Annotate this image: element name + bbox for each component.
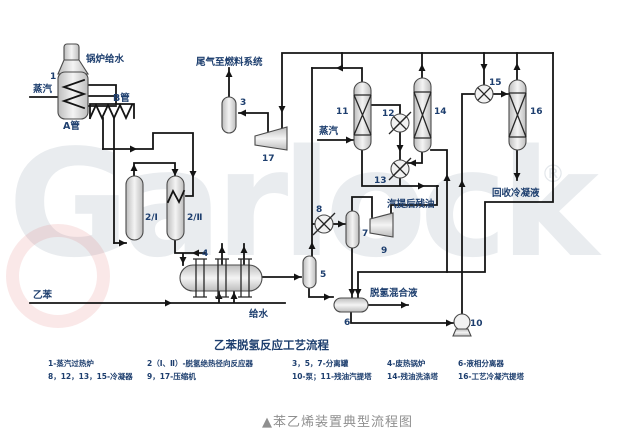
tag-4: 4 [202, 249, 208, 259]
label-boiler-feed-water: 锅炉给水 [86, 53, 125, 65]
tag-2-1: 2/Ⅰ [145, 213, 158, 223]
condenser-8 [313, 213, 335, 235]
figure-caption: ▲苯乙烯装置典型流程图 [262, 411, 413, 430]
tag-6: 6 [344, 318, 350, 328]
vessel-5 [303, 256, 316, 288]
label-tail-gas: 尾气至燃料系统 [195, 56, 263, 68]
tag-17: 17 [262, 154, 275, 164]
tag-8: 8 [316, 205, 322, 215]
stripper-16 [509, 80, 526, 150]
label-steam-left: 蒸汽 [33, 83, 53, 95]
label-steam-mid: 蒸汽 [319, 125, 339, 137]
reactor-2-2 [167, 176, 184, 240]
stripper-11 [354, 82, 371, 150]
label-dehydro-mixture: 脱氢混合液 [370, 287, 418, 299]
vessel-7 [346, 211, 359, 248]
legend-item: 8，12，13，15-冷凝器 [48, 371, 133, 382]
equipment-numbers: 1 2/Ⅰ 2/Ⅱ 3 4 5 6 7 8 9 10 11 12 13 14 1… [50, 72, 543, 329]
reactor-2-1 [126, 176, 143, 240]
label-tube-b: B管 [113, 92, 130, 104]
compressor-17 [255, 127, 287, 150]
diagram-title: 乙苯脱氢反应工艺流程 [214, 337, 329, 353]
process-flow-diagram: Garlock ® [0, 0, 620, 441]
legend-item: 3，5，7-分离罐 [292, 358, 348, 369]
label-recovered-condensate: 回收冷凝液 [492, 187, 540, 199]
legend-item: 2（Ⅰ、Ⅱ）-脱氢绝热径向反应器 [147, 358, 253, 369]
tag-11: 11 [336, 107, 349, 117]
pump-10 [453, 314, 471, 336]
tag-12: 12 [382, 109, 395, 119]
tag-1: 1 [50, 72, 56, 82]
label-ethylbenzene: 乙苯 [33, 289, 53, 301]
compressor-9 [370, 213, 393, 237]
legend-item: 1-蒸汽过热炉 [48, 358, 94, 369]
legend-item: 9，17-压缩机 [147, 371, 196, 382]
waste-heat-boiler-4 [180, 259, 262, 297]
furnace-1 [58, 44, 88, 119]
vessel-3 [222, 97, 236, 133]
label-tube-a: A管 [63, 120, 80, 132]
tag-9: 9 [381, 246, 387, 256]
scrubber-14 [414, 78, 431, 152]
label-feed-water: 给水 [249, 308, 269, 320]
legend-item: 4-废热锅炉 [387, 358, 425, 369]
tag-16: 16 [530, 107, 543, 117]
legend-item: 14-残油洗涤塔 [387, 371, 438, 382]
legend-item: 6-液相分离器 [458, 358, 504, 369]
tag-5: 5 [320, 270, 326, 280]
label-stripped-residual-oil: 汽提后残油 [387, 198, 435, 210]
tag-10: 10 [470, 319, 483, 329]
tag-13: 13 [374, 176, 387, 186]
condenser-13 [389, 158, 411, 180]
tag-14: 14 [434, 107, 447, 117]
tag-2-2: 2/Ⅱ [187, 213, 203, 223]
tag-3: 3 [240, 98, 246, 108]
legend-item: 16-工艺冷凝汽提塔 [458, 371, 524, 382]
tag-15: 15 [489, 78, 502, 88]
legend-item: 10-泵；11-残油汽提塔 [292, 371, 372, 382]
separator-6 [334, 298, 368, 312]
tag-7: 7 [362, 229, 368, 239]
